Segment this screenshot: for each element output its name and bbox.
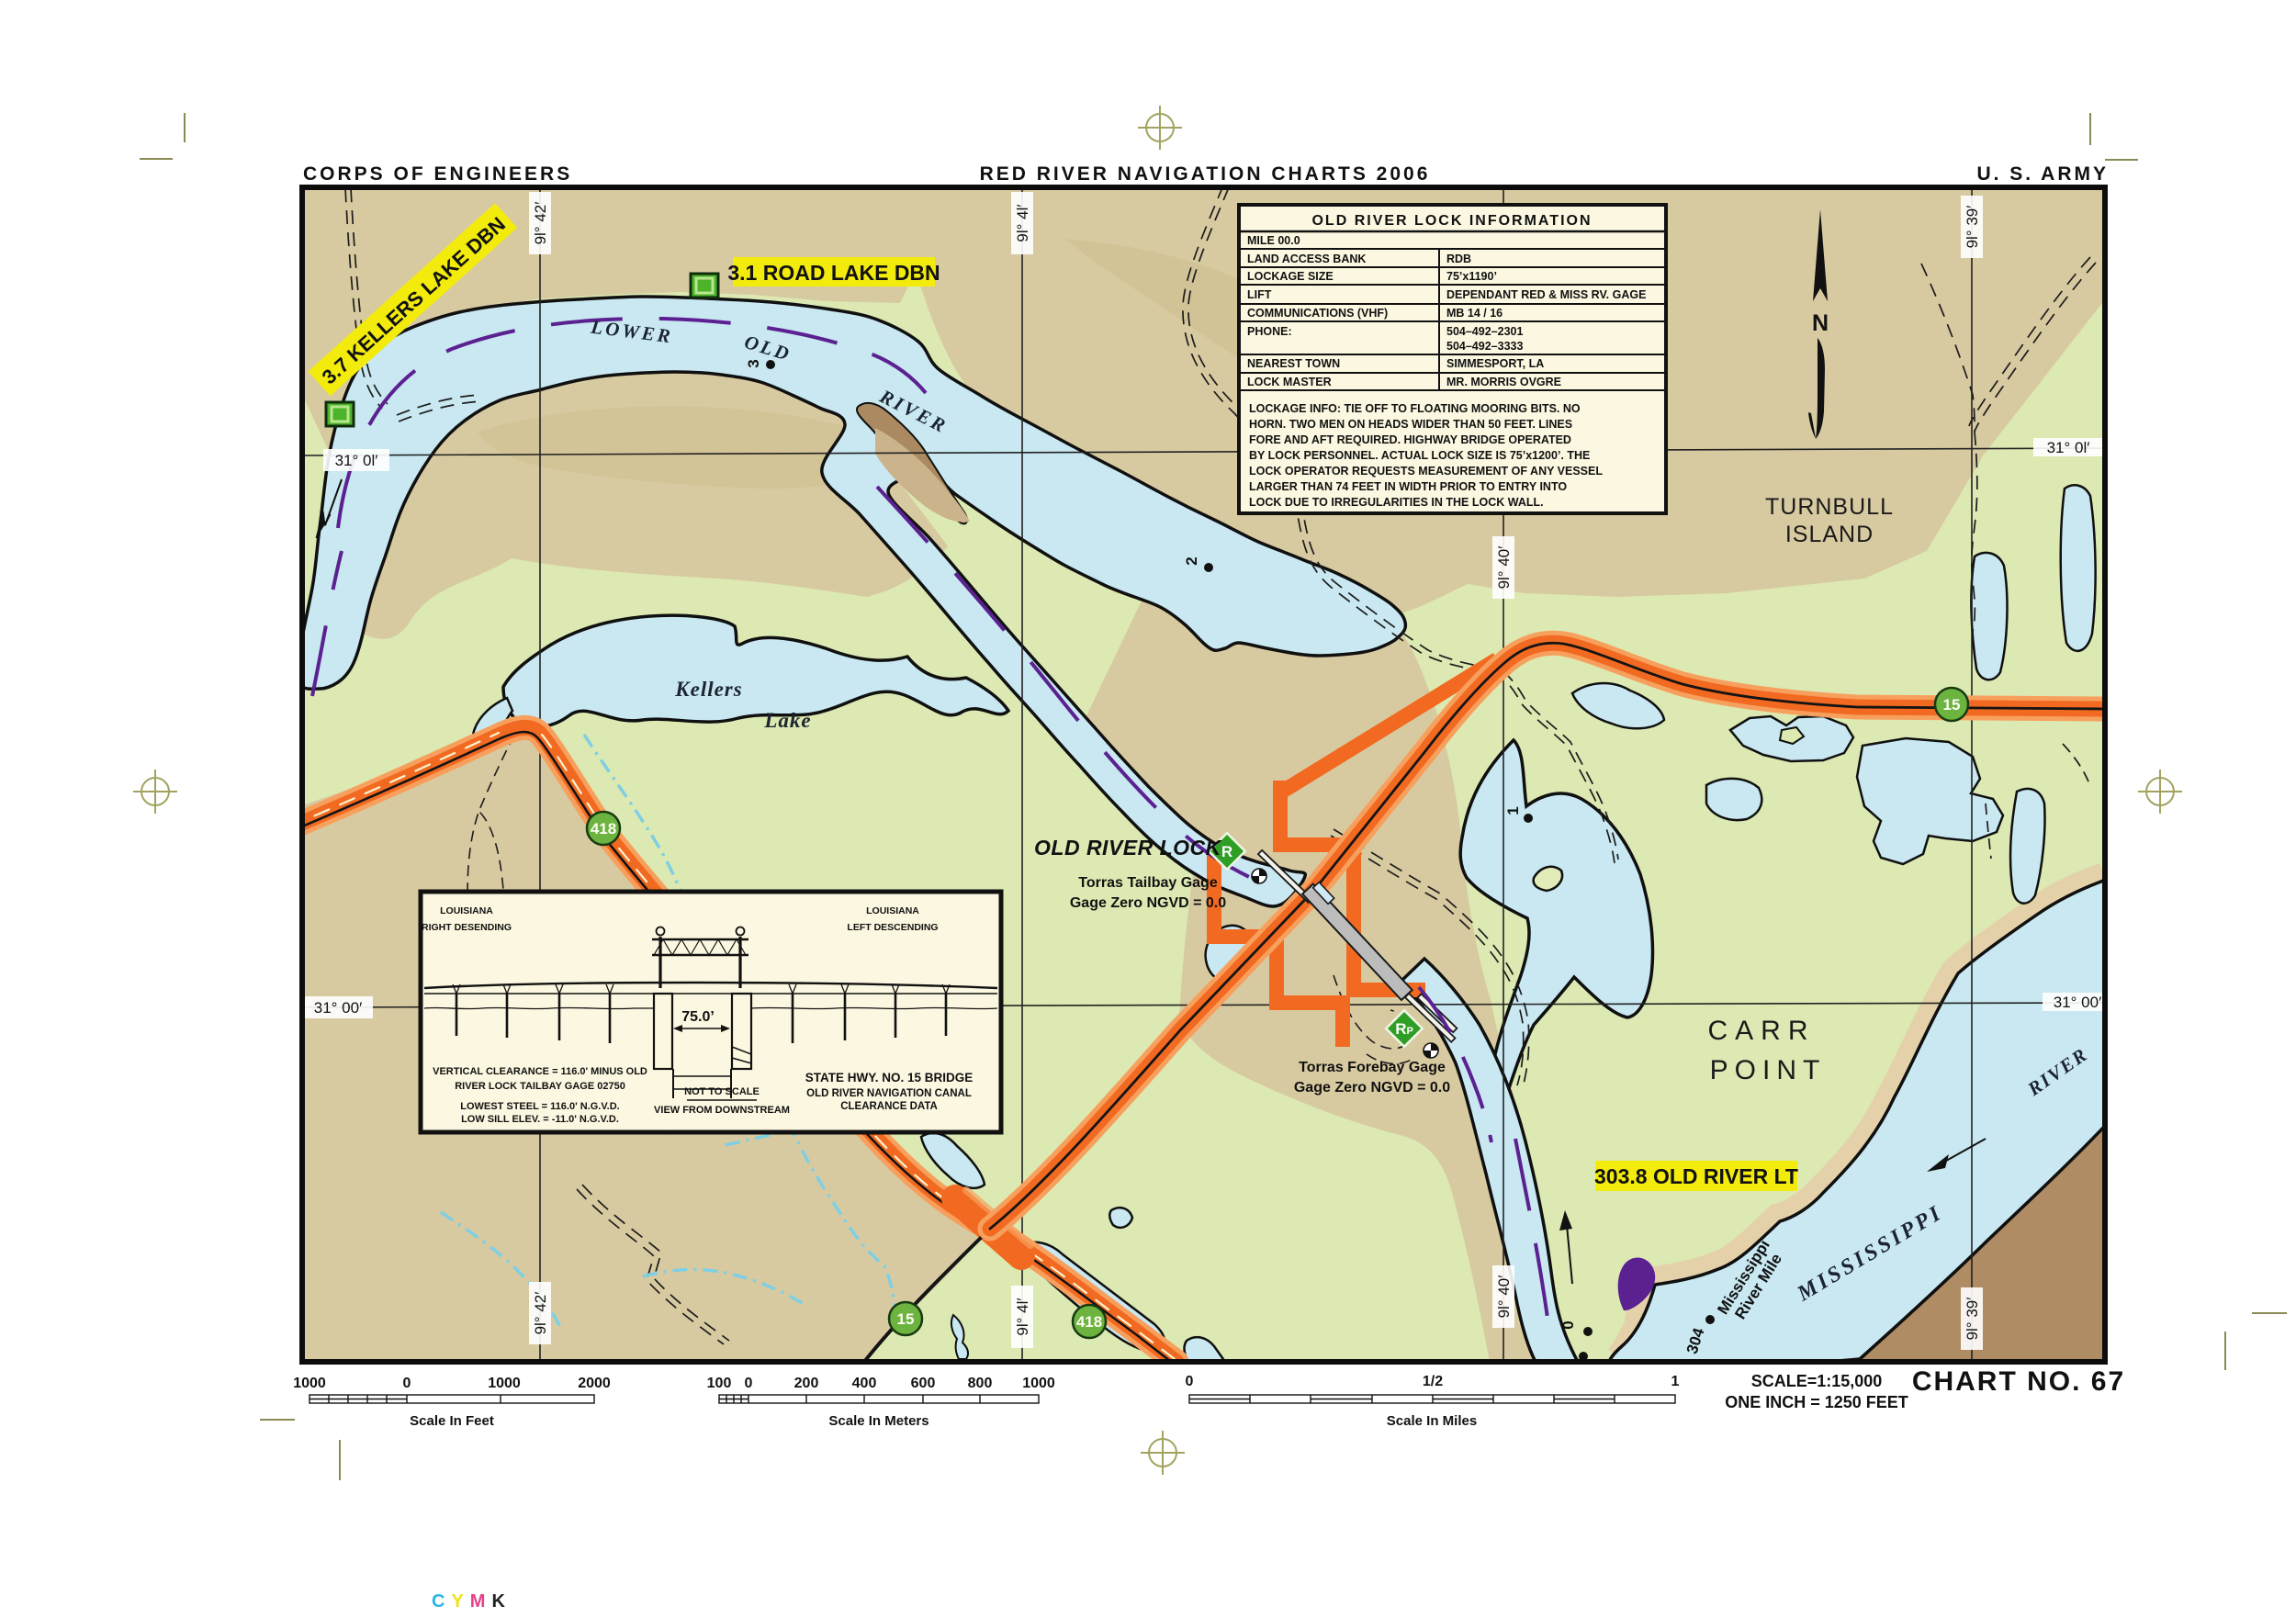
svg-text:9l° 42′: 9l° 42′ — [532, 202, 549, 245]
svg-text:600: 600 — [911, 1376, 936, 1391]
svg-text:U. S. ARMY: U. S. ARMY — [1976, 163, 2109, 185]
svg-text:LAND ACCESS BANK: LAND ACCESS BANK — [1247, 253, 1366, 265]
svg-text:MILE 00.0: MILE 00.0 — [1247, 234, 1300, 247]
svg-text:CLEARANCE DATA: CLEARANCE DATA — [840, 1101, 938, 1112]
svg-text:LARGER THAN 74 FEET IN WI: LARGER THAN 74 FEET IN WIDTH PRIOR TO EN… — [1249, 480, 1567, 493]
svg-text:504–492–2301: 504–492–2301 — [1446, 325, 1523, 338]
svg-text:ISLAND: ISLAND — [1785, 522, 1874, 547]
svg-text:TURNBULL: TURNBULL — [1765, 494, 1894, 520]
svg-text:LOUISIANA: LOUISIANA — [866, 905, 919, 916]
svg-text:2000: 2000 — [578, 1376, 611, 1391]
svg-text:DEPENDANT RED & MISS RV.: DEPENDANT RED & MISS RV. GAGE — [1446, 288, 1646, 301]
svg-text:STATE HWY. NO. 15 BRIDGE: STATE HWY. NO. 15 BRIDGE — [805, 1071, 974, 1084]
svg-text:0: 0 — [403, 1376, 411, 1391]
svg-text:RDB: RDB — [1446, 253, 1471, 265]
svg-text:9l° 39′: 9l° 39′ — [1964, 1298, 1981, 1341]
svg-text:9l° 42′: 9l° 42′ — [532, 1292, 549, 1335]
svg-text:303.8 OLD RIVER LT: 303.8 OLD RIVER LT — [1594, 1164, 1798, 1188]
svg-text:9l° 39′: 9l° 39′ — [1964, 206, 1981, 249]
svg-text:9l° 40′: 9l° 40′ — [1495, 1275, 1513, 1319]
svg-text:MB 14 / 16: MB 14 / 16 — [1446, 307, 1503, 320]
svg-text:1000: 1000 — [293, 1376, 326, 1391]
svg-text:400: 400 — [852, 1376, 877, 1391]
svg-text:NOT TO SCALE: NOT TO SCALE — [684, 1086, 760, 1097]
svg-text:OLD RIVER LOCK INFORMATION: OLD RIVER LOCK INFORMATION — [1311, 213, 1592, 229]
svg-text:N: N — [1812, 310, 1829, 336]
svg-text:MR. MORRIS OVGRE: MR. MORRIS OVGRE — [1446, 376, 1561, 388]
svg-text:NEAREST TOWN: NEAREST TOWN — [1247, 357, 1340, 370]
svg-text:LOCK OPERATOR REQUESTS MEAS: LOCK OPERATOR REQUESTS MEASUREMENT OF AN… — [1249, 465, 1603, 478]
svg-text:LOUISIANA: LOUISIANA — [440, 905, 493, 916]
svg-text:BY LOCK PERSONNEL. ACTUAL: BY LOCK PERSONNEL. ACTUAL LOCK SIZE IS 7… — [1249, 449, 1590, 462]
svg-text:LOWEST STEEL = 116.0' N.G.V.D.: LOWEST STEEL = 116.0' N.G.V.D. — [460, 1101, 619, 1112]
svg-text:Scale In Meters: Scale In Meters — [828, 1413, 929, 1429]
svg-text:1/2: 1/2 — [1423, 1374, 1443, 1389]
svg-text:CHART NO. 67: CHART NO. 67 — [1912, 1366, 2125, 1397]
svg-text:2: 2 — [1183, 556, 1200, 565]
svg-text:POINT: POINT — [1710, 1055, 1827, 1085]
svg-text:LOCKAGE SIZE: LOCKAGE SIZE — [1247, 270, 1334, 283]
svg-text:1: 1 — [1671, 1374, 1680, 1389]
svg-text:15: 15 — [1943, 696, 1961, 714]
svg-text:RIVER LOCK TAILBAY GAGE 02750: RIVER LOCK TAILBAY GAGE 02750 — [455, 1081, 625, 1092]
svg-text:FORE AND AFT REQUIRED. HIG: FORE AND AFT REQUIRED. HIGHWAY BRIDGE OP… — [1249, 433, 1571, 446]
svg-text:418: 418 — [1076, 1313, 1102, 1331]
svg-text:504–492–3333: 504–492–3333 — [1446, 340, 1523, 353]
svg-text:Scale In Feet: Scale In Feet — [410, 1413, 494, 1429]
svg-text:100: 100 — [707, 1376, 732, 1391]
svg-text:75’x1190’: 75’x1190’ — [1446, 270, 1497, 283]
svg-text:Gage Zero NGVD = 0.0: Gage Zero NGVD = 0.0 — [1070, 895, 1226, 911]
svg-text:Gage Zero NGVD = 0.0: Gage Zero NGVD = 0.0 — [1294, 1080, 1450, 1096]
svg-text:31° 00′: 31° 00′ — [314, 999, 363, 1017]
svg-text:LOCK DUE TO IRREGULARITIES: LOCK DUE TO IRREGULARITIES IN THE LOCK W… — [1249, 496, 1544, 509]
svg-text:9l° 4l′: 9l° 4l′ — [1014, 204, 1031, 242]
svg-text:Scale In Miles: Scale In Miles — [1387, 1413, 1477, 1429]
svg-text:75.0’: 75.0’ — [681, 1009, 715, 1025]
svg-text:RED RIVER NAVIGATION CHARTS 20: RED RIVER NAVIGATION CHARTS 2006 — [980, 163, 1431, 185]
svg-text:OLD RIVER LOCK: OLD RIVER LOCK — [1034, 836, 1222, 860]
svg-text:31° 0l′: 31° 0l′ — [2047, 439, 2090, 456]
svg-text:800: 800 — [968, 1376, 993, 1391]
svg-text:VERTICAL CLEARANCE = 116.0' MI: VERTICAL CLEARANCE = 116.0' MINUS OLD — [433, 1066, 647, 1077]
svg-text:0: 0 — [1186, 1374, 1194, 1389]
svg-text:200: 200 — [794, 1376, 819, 1391]
svg-text:9l° 40′: 9l° 40′ — [1495, 546, 1513, 590]
svg-text:CORPS OF ENGINEERS: CORPS OF ENGINEERS — [303, 163, 572, 185]
svg-text:HORN. TWO MEN ON HEADS WI: HORN. TWO MEN ON HEADS WIDER THAN 50 FEE… — [1249, 418, 1572, 431]
svg-text:SIMMESPORT, LA: SIMMESPORT, LA — [1446, 357, 1544, 370]
svg-text:0: 0 — [1559, 1320, 1577, 1329]
svg-text:LOCK MASTER: LOCK MASTER — [1247, 376, 1332, 388]
svg-text:LIFT: LIFT — [1247, 288, 1272, 301]
svg-text:CYMK: CYMK — [432, 1591, 512, 1607]
svg-text:VIEW FROM DOWNSTREAM: VIEW FROM DOWNSTREAM — [654, 1105, 790, 1116]
svg-text:1: 1 — [1504, 806, 1522, 815]
svg-text:Kellers: Kellers — [674, 678, 742, 701]
svg-text:LEFT DESCENDING: LEFT DESCENDING — [847, 922, 938, 933]
svg-text:9l° 4l′: 9l° 4l′ — [1014, 1298, 1031, 1335]
svg-text:Torras Forebay Gage: Torras Forebay Gage — [1299, 1060, 1446, 1075]
svg-text:31° 0l′: 31° 0l′ — [335, 452, 378, 469]
svg-text:1000: 1000 — [1022, 1376, 1055, 1391]
svg-text:ONE INCH = 1250 FEET: ONE INCH = 1250 FEET — [1725, 1393, 1908, 1411]
svg-text:RIGHT DESENDING: RIGHT DESENDING — [422, 922, 512, 933]
svg-text:PHONE:: PHONE: — [1247, 325, 1292, 338]
svg-text:3.1 ROAD LAKE DBN: 3.1 ROAD LAKE DBN — [727, 261, 940, 285]
svg-text:OLD RIVER NAVIGATION CANAL: OLD RIVER NAVIGATION CANAL — [806, 1088, 972, 1099]
svg-text:COMMUNICATIONS (VHF): COMMUNICATIONS (VHF) — [1247, 307, 1388, 320]
svg-text:0: 0 — [745, 1376, 753, 1391]
svg-text:CARR: CARR — [1707, 1016, 1815, 1046]
svg-text:LOCKAGE INFO: TIE OFF TO: LOCKAGE INFO: TIE OFF TO FLOATING MOORIN… — [1249, 402, 1581, 415]
svg-text:SCALE=1:15,000: SCALE=1:15,000 — [1751, 1372, 1883, 1390]
svg-text:R: R — [1221, 843, 1232, 860]
svg-text:1000: 1000 — [488, 1376, 521, 1391]
svg-text:Lake: Lake — [763, 709, 811, 732]
svg-text:15: 15 — [897, 1310, 915, 1328]
svg-text:LOW SILL ELEV. = -11.0' N.G.V.: LOW SILL ELEV. = -11.0' N.G.V.D. — [461, 1114, 619, 1125]
svg-text:31° 00′: 31° 00′ — [2054, 994, 2102, 1011]
svg-text:418: 418 — [591, 820, 616, 837]
svg-text:3: 3 — [745, 359, 762, 367]
svg-text:Torras Tailbay Gage: Torras Tailbay Gage — [1078, 875, 1218, 891]
